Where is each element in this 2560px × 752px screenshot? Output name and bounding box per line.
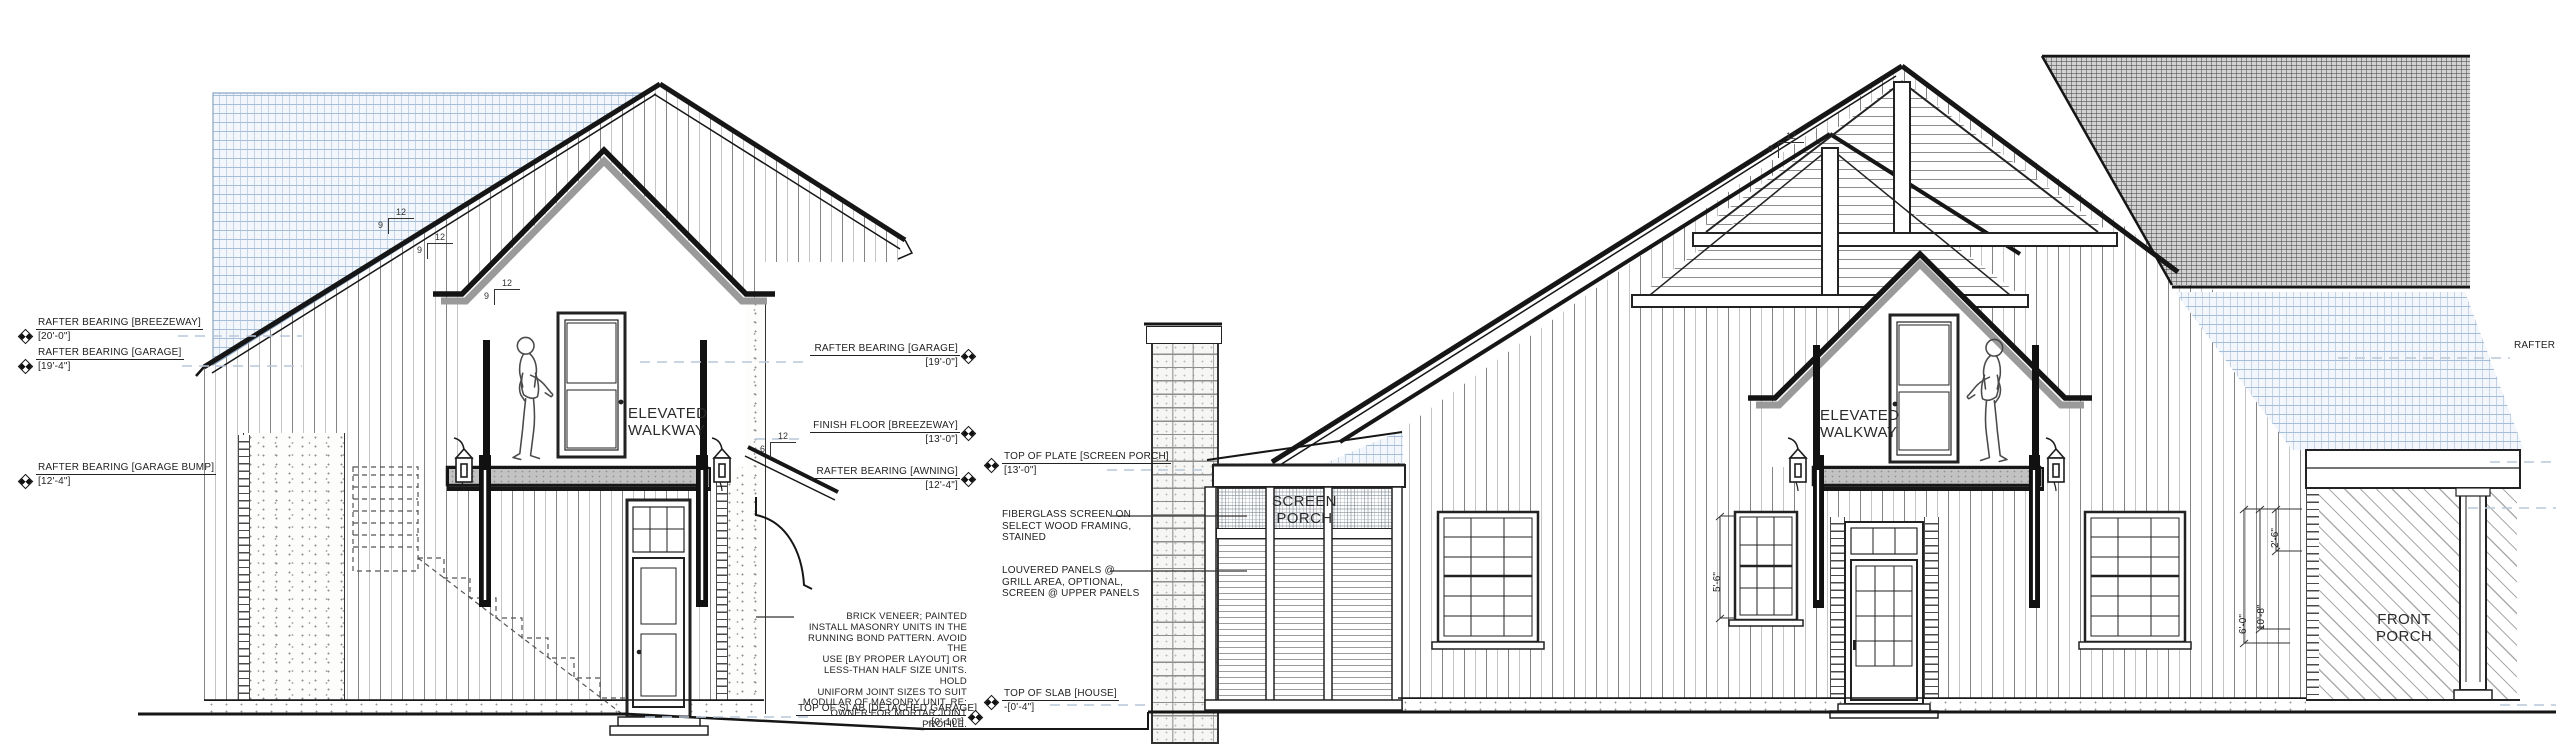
marker-finish-floor-breezeway: FINISH FLOOR [BREEZEWAY] [13'-0"] xyxy=(810,420,960,445)
windows xyxy=(1432,512,2191,649)
rafter-cutoff-note: RAFTER xyxy=(2514,340,2555,352)
roof-slope-marker: 12 9 xyxy=(494,289,520,305)
elevated-walkway-label-left: ELEVATED WALKWAY xyxy=(628,406,707,439)
entry-door xyxy=(1830,522,1938,718)
linework-layer xyxy=(0,0,2560,752)
brick-veneer-note: BRICK VENEER; PAINTED INSTALL MASONRY UN… xyxy=(795,612,967,731)
dimension-2-6: 2'-6" xyxy=(2270,528,2281,548)
awning-slope-marker: 12 6 xyxy=(770,442,796,458)
elevated-walkway-label-right: ELEVATED WALKWAY xyxy=(1820,408,1899,441)
elevation-sheet: ELEVATED WALKWAY ELEVATED WALKWAY SCREEN… xyxy=(0,0,2560,752)
roof-slope-marker: 12 9 xyxy=(427,243,453,259)
screen-porch-label: SCREEN PORCH xyxy=(1272,494,1337,527)
dimension-10-8: 10'-8" xyxy=(2256,605,2267,630)
louvered-panels-note: LOUVERED PANELS @ GRILL AREA, OPTIONAL, … xyxy=(1002,565,1140,600)
marker-rafter-bearing-breezeway: RAFTER BEARING [BREEZEWAY] [20'-0"] xyxy=(36,317,203,342)
dimension-lines xyxy=(1716,506,2302,647)
marker-rafter-bearing-garage-mid: RAFTER BEARING [GARAGE] [19'-0"] xyxy=(810,343,960,368)
fiberglass-screen-note: FIBERGLASS SCREEN ON SELECT WOOD FRAMING… xyxy=(1002,509,1131,544)
window-height-dimension: 5'-6" xyxy=(1712,572,1723,592)
roof-slope-marker: 12 9 xyxy=(388,218,414,234)
dimension-6-0: 6'-0" xyxy=(2238,614,2249,634)
front-porch-label: FRONT PORCH xyxy=(2376,612,2432,645)
left-walkway-gable xyxy=(433,150,775,607)
hidden-stair-dashed xyxy=(353,467,630,720)
marker-rafter-bearing-garage-bump: RAFTER BEARING [GARAGE BUMP] [12'-4"] xyxy=(36,462,216,487)
marker-rafter-bearing-awning: RAFTER BEARING [AWNING] [12'-4"] xyxy=(810,466,960,491)
marker-rafter-bearing-garage-left: RAFTER BEARING [GARAGE] [19'-4"] xyxy=(36,347,184,372)
gable-trusses xyxy=(1632,82,2117,307)
roof-slope-marker: 12 9 xyxy=(1778,142,1804,158)
front-porch-structure xyxy=(2306,450,2520,700)
marker-top-of-slab-house: TOP OF SLAB [HOUSE] -[0'-4"] xyxy=(1002,688,1119,713)
marker-top-of-plate-screen-porch: TOP OF PLATE [SCREEN PORCH] [13'-0"] xyxy=(1002,451,1171,476)
